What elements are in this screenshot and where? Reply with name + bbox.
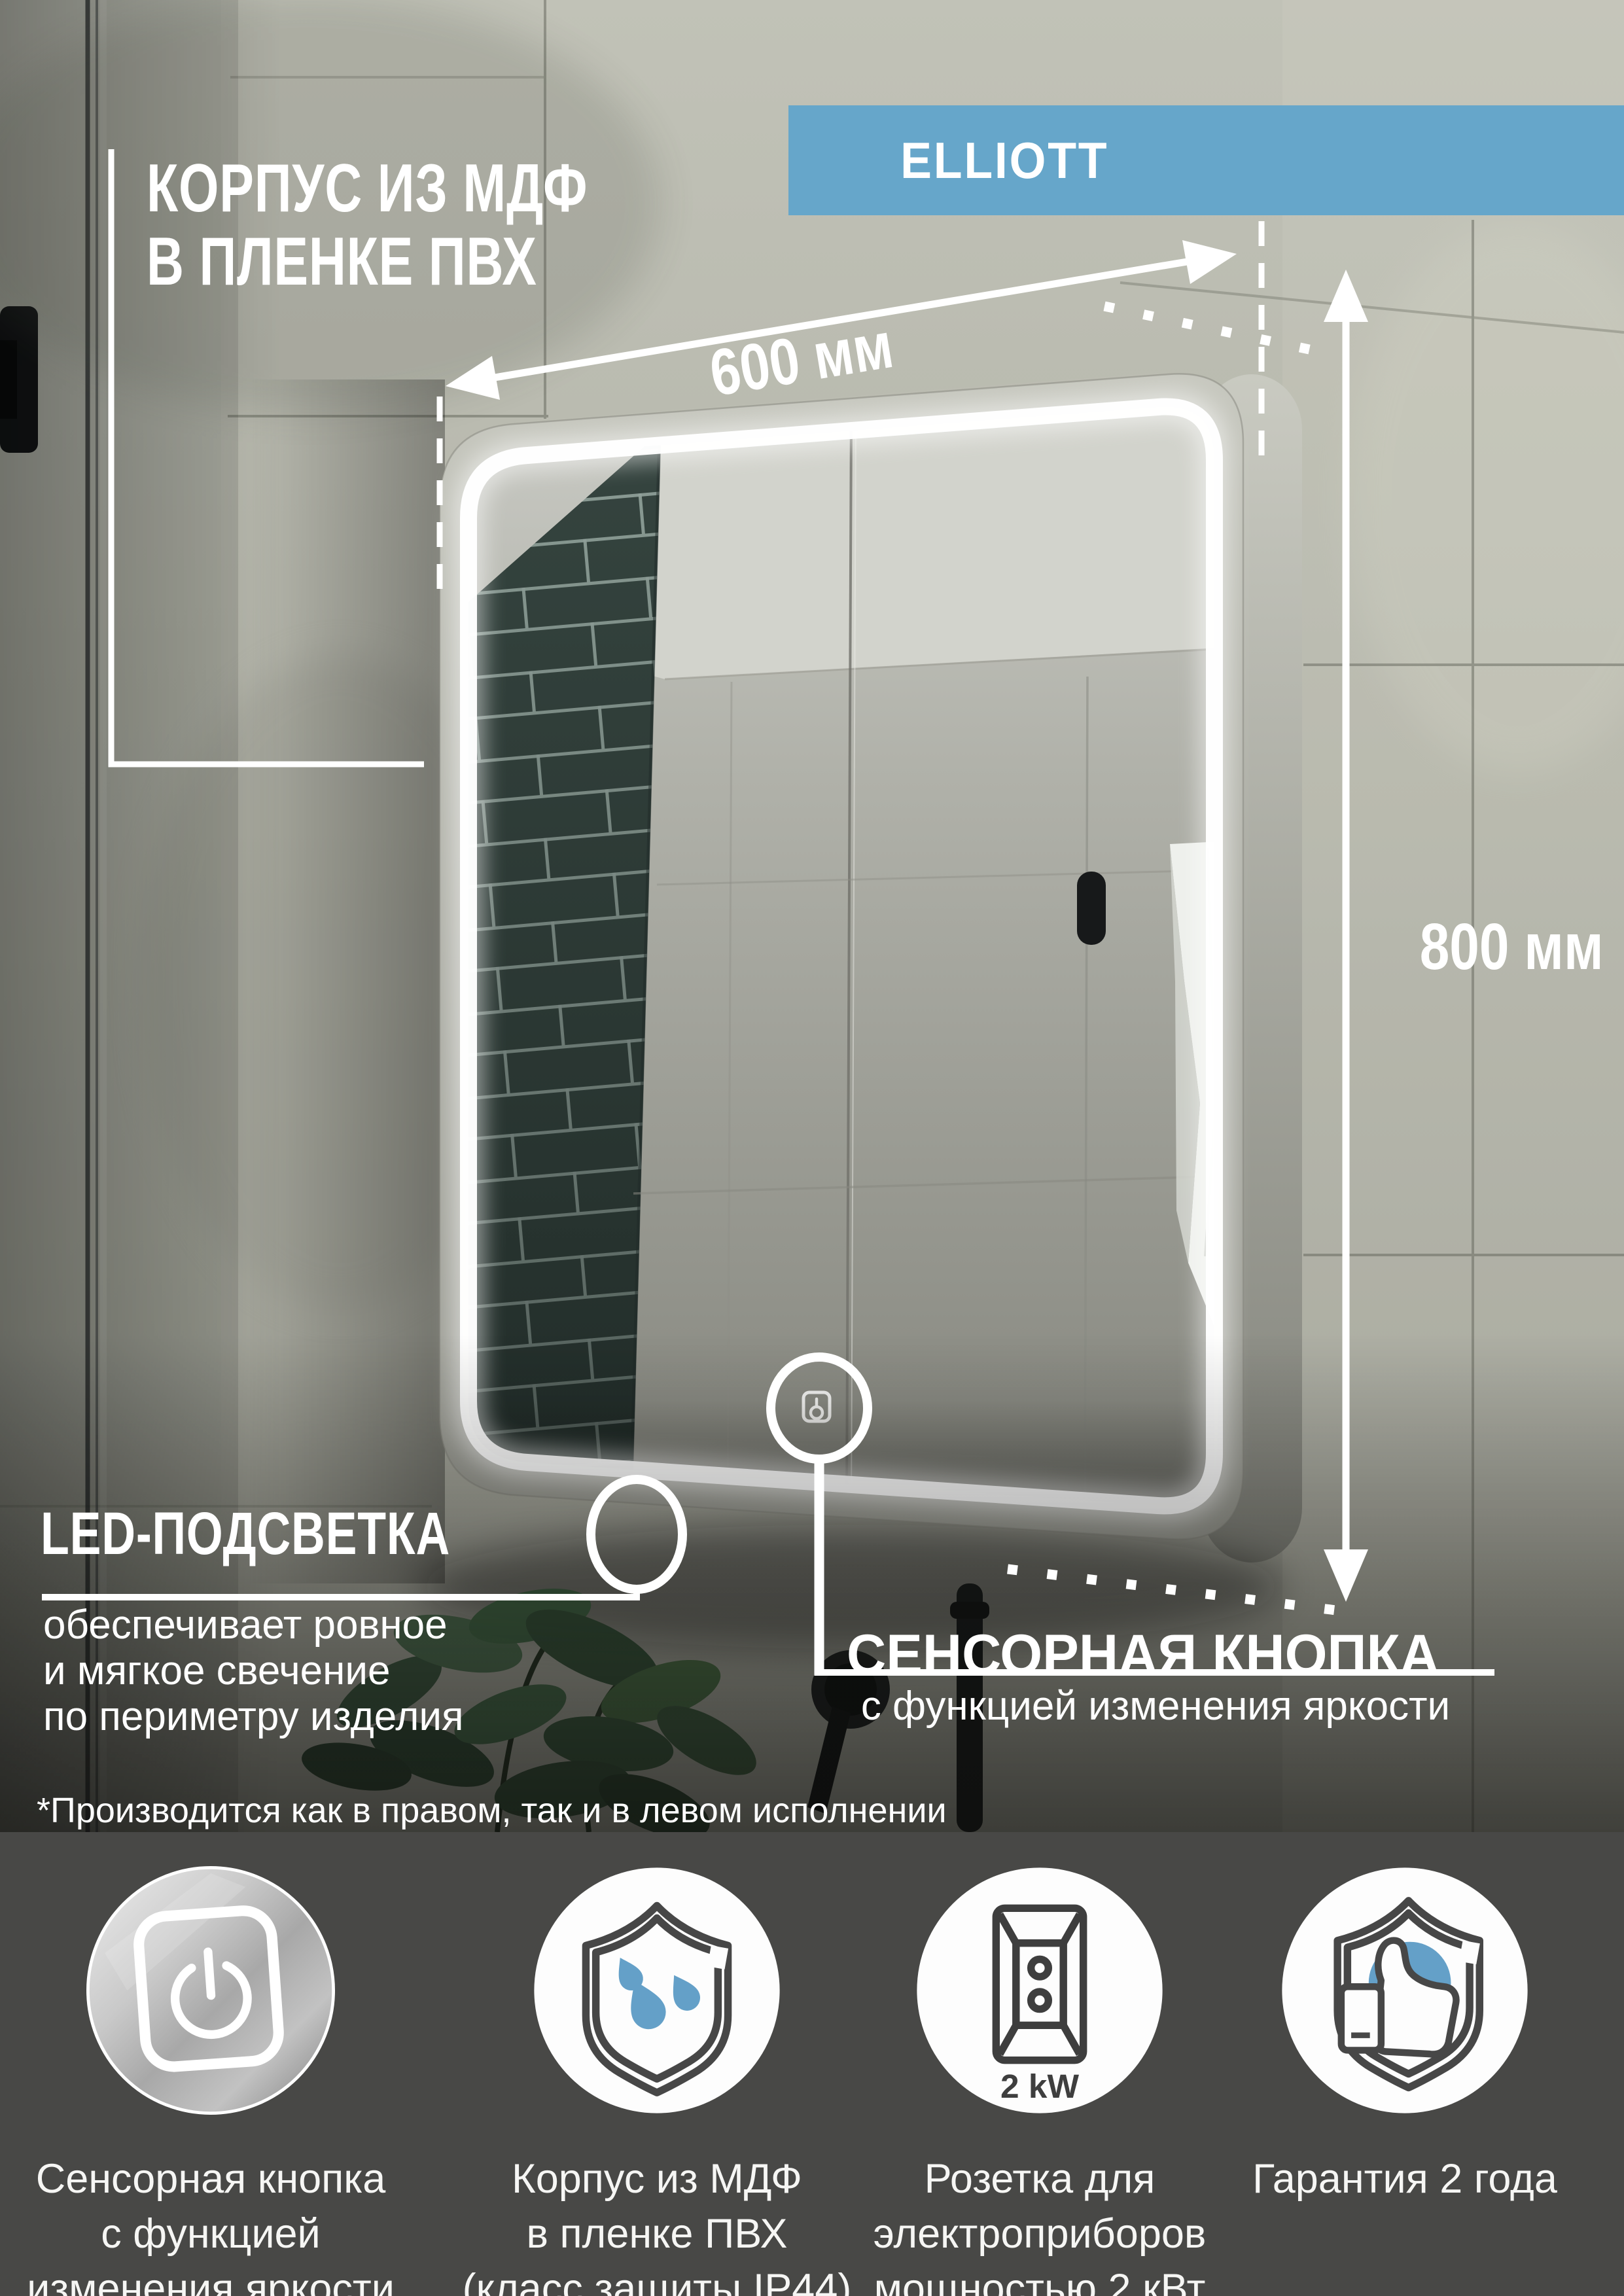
sensor-title: СЕНСОРНАЯ КНОПКА [847, 1623, 1439, 1687]
model-banner: ELLIOTT [788, 105, 1624, 215]
body-material-line2: В ПЛЕНКЕ ПВХ [147, 225, 588, 298]
feature-warranty: Гарантия 2 года [1189, 1832, 1621, 2296]
led-desc-line1: обеспечивает ровное [43, 1602, 464, 1648]
model-name: ELLIOTT [788, 131, 1108, 190]
body-material-callout: КОРПУС ИЗ МДФ В ПЛЕНКЕ ПВХ [147, 152, 588, 298]
body-material-line1: КОРПУС ИЗ МДФ [147, 152, 588, 225]
power-socket-icon: 2 kW [909, 1860, 1171, 2121]
feature-ip44-body: Корпус из МДФ в пленке ПВХ (класс защиты… [441, 1832, 873, 2296]
shield-water-drops-icon [526, 1860, 788, 2121]
feature-caption: Корпус из МДФ в пленке ПВХ (класс защиты… [441, 2151, 873, 2296]
height-label: 800 мм [1420, 910, 1597, 985]
socket-power-badge: 2 kW [1000, 2067, 1079, 2105]
warranty-thumbs-up-shield-icon [1274, 1860, 1536, 2121]
led-title: LED-ПОДСВЕТКА [41, 1500, 450, 1568]
touch-button-icon [80, 1860, 342, 2121]
footnote: *Производится как в правом, так и в лево… [37, 1790, 947, 1831]
feature-caption: Гарантия 2 года [1189, 2151, 1621, 2206]
feature-caption: Сенсорная кнопка с функцией изменения яр… [0, 2151, 427, 2296]
led-desc-line3: по периметру изделия [43, 1694, 464, 1740]
feature-touch-button: Сенсорная кнопка с функцией изменения яр… [0, 1832, 427, 2296]
features-bar: Сенсорная кнопка с функцией изменения яр… [0, 1832, 1624, 2296]
led-description: обеспечивает ровное и мягкое свечение по… [43, 1602, 464, 1740]
sensor-subtitle: с функцией изменения яркости [817, 1683, 1494, 1729]
product-infographic: ELLIOTT КОРПУС ИЗ МДФ В ПЛЕНКЕ ПВХ 600 м… [0, 0, 1624, 2296]
towel-hook [1077, 872, 1106, 945]
led-desc-line2: и мягкое свечение [43, 1648, 464, 1694]
